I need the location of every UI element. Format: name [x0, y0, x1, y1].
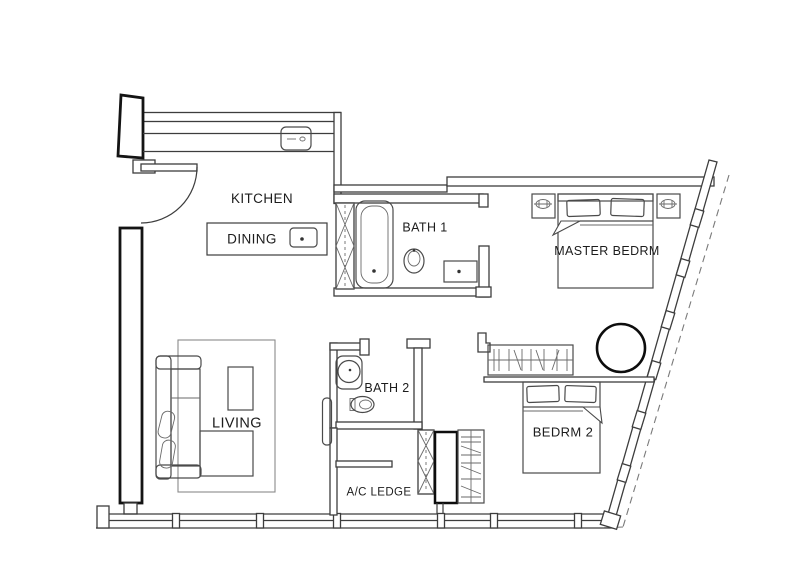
living-label: LIVING: [212, 416, 262, 432]
blanket-fold: [553, 221, 580, 235]
bath2-label: BATH 2: [364, 381, 409, 395]
round-table: [597, 324, 645, 372]
bottom-window-wall: [96, 506, 621, 529]
dining-label: DINING: [227, 232, 277, 247]
bedroom2-label: BEDRM 2: [533, 425, 594, 440]
cushion: [157, 410, 176, 439]
kitchen: [143, 127, 334, 152]
door-swing-arc: [141, 167, 197, 223]
nightstand-left: [532, 194, 555, 218]
wardrobe-side: [458, 430, 484, 503]
floor-plan-canvas: KITCHEN DINING BATH 1 MASTER BEDRM BATH …: [0, 0, 800, 586]
vanity-bath2: [336, 356, 362, 389]
blanket-fold: [583, 407, 602, 423]
door-leaf: [141, 164, 197, 171]
ac-unit: [435, 432, 457, 514]
coffee-table: [228, 367, 253, 410]
exterior-walls: [118, 95, 714, 514]
cooktop: [281, 127, 311, 150]
nightstand-right: [657, 194, 680, 218]
wall-pier-top: [118, 95, 143, 158]
floor-plan-page: KITCHEN DINING BATH 1 MASTER BEDRM BATH …: [0, 0, 800, 586]
boundary-dashed-line: [623, 175, 729, 527]
wall-pier-left: [120, 228, 142, 503]
duct-shaft-bath1: [336, 203, 354, 289]
wardrobe-top: [488, 345, 573, 375]
interior-walls: [330, 194, 654, 515]
bath1-label: BATH 1: [402, 221, 447, 235]
vanity-bath1: [444, 261, 477, 282]
right-window-wall: [603, 160, 729, 528]
bath1: [356, 201, 477, 288]
duct-shaft-ledge: [418, 430, 434, 494]
master-bedroom-label: MASTER BEDRM: [554, 244, 660, 258]
master-bed: [553, 194, 653, 288]
dining-sink: [290, 228, 317, 247]
toilet-bath1: [404, 249, 424, 273]
ac-ledge-label: A/C LEDGE: [347, 487, 412, 499]
kitchen-label: KITCHEN: [231, 191, 293, 206]
bathtub: [356, 201, 393, 288]
toilet-bath2: [350, 397, 374, 413]
